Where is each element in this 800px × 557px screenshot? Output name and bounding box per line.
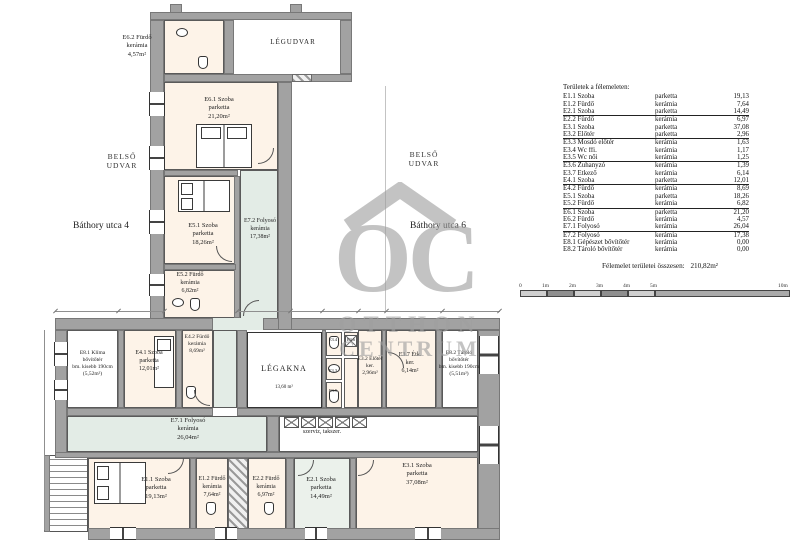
legend-room-name: E3.5 Wc női: [563, 154, 655, 161]
window-icon: [149, 146, 165, 170]
legend-area-value: 12,01: [705, 177, 749, 184]
legend-area-value: 19,13: [705, 93, 749, 100]
legend-area-value: 6,97: [705, 116, 749, 123]
scale-segment: [574, 290, 601, 297]
window-icon: [149, 210, 165, 234]
room-label-e82: E8.2 Tároló bővítőtér bm. kisebb 190cm (…: [436, 350, 482, 379]
pillow-icon: [181, 183, 193, 195]
room-label-e36: E3.6: [343, 338, 359, 343]
legend-row: E7.1 Folyosó kerámia 26,04: [563, 223, 749, 231]
floorplan-document: E6.2 Fürdő kerámia 4,57m² LÉGUDVAR E6.1 …: [0, 0, 800, 557]
room-label-e61: E6.1 Szoba parketta 21,20m²: [189, 96, 249, 121]
service-box-icon: [284, 417, 299, 428]
room-label-e52: E5.2 Fürdő kerámia 6,82m²: [163, 272, 217, 295]
legend-row: E5.1 Szoba parketta 18,26: [563, 193, 749, 200]
legend-room-name: E7.1 Folyosó: [563, 223, 655, 230]
legend-material: kerámia: [655, 232, 705, 239]
wall-cut-hatch: [292, 74, 312, 82]
legend-material: parketta: [655, 177, 705, 184]
legend-row: E4.1 Szoba parketta 12,01: [563, 177, 749, 185]
legend-row: E7.2 Folyosó kerámia 17,38: [563, 232, 749, 239]
wall: [278, 82, 292, 330]
legend-material: kerámia: [655, 246, 705, 253]
legend-area-value: 18,26: [705, 193, 749, 200]
legend-area-value: 1,63: [705, 139, 749, 146]
legend-area-value: 1,17: [705, 147, 749, 154]
legend: Területek a félemeleten: E1.1 Szoba park…: [563, 84, 749, 254]
service-box-icon: [335, 417, 350, 428]
legend-total: Félemelet területei összesen: 210,82m²: [560, 262, 760, 270]
room-label-e12: E1.2 Fürdő kerámia 7,64m²: [194, 476, 230, 499]
legend-room-name: E1.2 Fürdő: [563, 101, 655, 108]
room-label-e32: E3.2 Előtér ker. 2,96m²: [356, 356, 384, 377]
dimension-tick: [497, 309, 502, 314]
wall: [150, 12, 352, 20]
legend-row: E3.2 Előtér parketta 2,96: [563, 131, 749, 139]
corridor-connector: [213, 318, 263, 330]
legend-room-name: E8.1 Gépészet bővítőtér: [563, 239, 655, 246]
toilet-icon: [206, 502, 216, 515]
pillow-icon: [227, 127, 247, 139]
sink-icon: [172, 298, 184, 307]
service-box-icon: [318, 417, 333, 428]
scale-segment: [547, 290, 574, 297]
room-label-e11: E1.1 Szoba parketta 19,13m²: [126, 476, 186, 501]
scale-label: 5m: [650, 283, 657, 289]
street-label-bathory6: Báthory utca 6: [388, 221, 488, 231]
legend-room-name: E3.1 Szoba: [563, 124, 655, 131]
legend-material: parketta: [655, 108, 705, 115]
room-label-e42: E4.2 Fürdő kerámia 8,69m²: [177, 334, 217, 355]
legend-material: parketta: [655, 193, 705, 200]
legend-room-name: E3.4 Wc ffi.: [563, 147, 655, 154]
wall: [237, 408, 478, 416]
legend-area-value: 8,69: [705, 185, 749, 192]
legend-material: kerámia: [655, 223, 705, 230]
scale-bar: 0 1m 2m 3m 4m 5m 10m: [520, 283, 790, 299]
scale-label: 2m: [569, 283, 576, 289]
wall: [291, 318, 500, 330]
corridor-label-e71: E7.1 Folyosó kerámia 26,04m²: [158, 417, 218, 442]
street-label-bathory4: Báthory utca 4: [56, 221, 146, 231]
legend-area-value: 2,96: [705, 131, 749, 138]
window-icon: [54, 380, 68, 400]
legend-row: E3.1 Szoba parketta 37,08: [563, 124, 749, 131]
legend-room-name: E3.7 Étkező: [563, 170, 655, 177]
room-label-e35: E3.5: [325, 389, 341, 394]
legend-room-name: E4.1 Szoba: [563, 177, 655, 184]
legend-room-name: E4.2 Fürdő: [563, 185, 655, 192]
legend-area-value: 1,25: [705, 154, 749, 161]
window-icon: [305, 527, 327, 540]
balcony-door-icon: [479, 426, 499, 464]
pillow-icon: [97, 486, 109, 500]
legend-row: E8.1 Gépészet bővítőtér kerámia 0,00: [563, 239, 749, 246]
legend-total-value: 210,82m²: [690, 262, 718, 270]
balcony-door-icon: [479, 336, 499, 374]
legend-row: E6.2 Fürdő kerámia 4,57: [563, 216, 749, 223]
bed-icon: [196, 124, 252, 168]
legend-material: parketta: [655, 124, 705, 131]
legend-row: E6.1 Szoba parketta 21,20: [563, 209, 749, 216]
legend-area-value: 0,00: [705, 239, 749, 246]
scale-segment: [628, 290, 655, 297]
legend-material: kerámia: [655, 216, 705, 223]
legend-material: kerámia: [655, 185, 705, 192]
shaft-hatch: [228, 458, 248, 530]
legend-area-value: 6,14: [705, 170, 749, 177]
legend-area-value: 37,08: [705, 124, 749, 131]
legend-material: parketta: [655, 131, 705, 138]
window-icon: [110, 527, 136, 540]
legakna-area: 13,60 m²: [275, 385, 293, 390]
wall: [224, 20, 234, 74]
dimension-line: [237, 311, 500, 312]
legend-material: kerámia: [655, 139, 705, 146]
legend-material: kerámia: [655, 154, 705, 161]
room-label-e31: E3.1 Szoba parketta 37,08m²: [387, 462, 447, 487]
room-label-e22: E2.2 Fürdő kerámia 6,97m²: [246, 476, 286, 499]
room-label-e33: E3.3: [325, 369, 341, 374]
room-e62-bath: [164, 20, 224, 74]
room-label-e34: E3.4: [325, 338, 341, 343]
window-icon: [149, 92, 165, 116]
toilet-icon: [198, 56, 208, 69]
legend-row: E2.1 Szoba parketta 14,49: [563, 108, 749, 116]
legend-area-value: 7,64: [705, 101, 749, 108]
shaft-label-legakna: LÉGAKNA 13,60 m²: [254, 356, 314, 392]
legend-area-value: 17,38: [705, 232, 749, 239]
legend-room-name: E3.2 Előtér: [563, 131, 655, 138]
legend-room-name: E5.2 Fürdő: [563, 200, 655, 207]
legend-total-label: Félemelet területei összesen:: [602, 262, 685, 270]
wall: [55, 452, 478, 458]
sink-icon: [176, 28, 188, 37]
room-label-e62: E6.2 Fürdő kerámia 4,57m²: [107, 34, 167, 59]
wall: [67, 408, 213, 416]
legend-area-value: 26,04: [705, 223, 749, 230]
legend-material: kerámia: [655, 239, 705, 246]
legend-area-value: 0,00: [705, 246, 749, 253]
legend-header: Területek a félemeleten:: [563, 84, 749, 91]
wall: [237, 330, 247, 408]
legend-area-value: 6,82: [705, 200, 749, 207]
wall: [234, 176, 240, 318]
scale-label: 3m: [596, 283, 603, 289]
legend-room-name: E1.1 Szoba: [563, 93, 655, 100]
legend-area-value: 1,39: [705, 162, 749, 169]
scale-label: 1m: [542, 283, 549, 289]
legend-room-name: E6.1 Szoba: [563, 209, 655, 216]
courtyard-label-right: BELSŐ UDVAR: [399, 150, 449, 168]
legend-material: kerámia: [655, 162, 705, 169]
toilet-icon: [264, 502, 274, 515]
courtyard-label-left: BELSŐ UDVAR: [97, 152, 147, 170]
scale-label: 10m: [778, 283, 788, 289]
legend-row: E2.2 Fürdő kerámia 6,97: [563, 116, 749, 123]
room-label-e37: E3.7 Étk. ker. 6,14m²: [390, 352, 430, 375]
window-icon: [415, 527, 441, 540]
legend-area-value: 4,57: [705, 216, 749, 223]
scale-segment: [601, 290, 628, 297]
wall: [164, 264, 236, 270]
service-box-icon: [301, 417, 316, 428]
scale-segment: [520, 290, 547, 297]
legend-area-value: 21,20: [705, 209, 749, 216]
wall: [55, 318, 213, 330]
legend-row: E8.2 Tároló bővítőtér kerámia 0,00: [563, 246, 749, 253]
legend-room-name: E2.2 Fürdő: [563, 116, 655, 123]
toilet-icon: [190, 298, 200, 311]
wall: [164, 170, 238, 176]
property-line: [385, 86, 386, 311]
window-icon: [215, 527, 237, 540]
wall: [350, 458, 356, 530]
wall: [340, 20, 352, 74]
legend-row: E3.7 Étkező kerámia 6,14: [563, 170, 749, 177]
legend-room-name: E6.2 Fürdő: [563, 216, 655, 223]
dimension-line: [55, 311, 165, 312]
legend-room-name: E2.1 Szoba: [563, 108, 655, 115]
staircase: [48, 455, 88, 532]
legend-room-name: E5.1 Szoba: [563, 193, 655, 200]
room-label-e51: E5.1 Szoba parketta 18,26m²: [173, 222, 233, 247]
service-box-icon: [352, 417, 367, 428]
legend-area-value: 14,49: [705, 108, 749, 115]
scale-segment: [655, 290, 790, 297]
legend-row: E3.4 Wc ffi. kerámia 1,17: [563, 147, 749, 154]
room-label-e21: E2.1 Szoba parketta 14,49m²: [293, 476, 349, 501]
legend-material: kerámia: [655, 116, 705, 123]
dimension-line: [44, 330, 45, 530]
legend-room-name: E3.6 Zuhanyzó: [563, 162, 655, 169]
wall: [164, 74, 352, 82]
courtyard-label-legudvar: LÉGUDVAR: [258, 38, 328, 47]
legend-room-name: E3.3 Mosdó előtér: [563, 139, 655, 146]
bed-icon: [178, 180, 230, 212]
scale-label: 4m: [623, 283, 630, 289]
legend-row: E1.1 Szoba parketta 19,13: [563, 93, 749, 100]
wall: [267, 416, 279, 452]
pillow-icon: [181, 198, 193, 210]
legend-row: E4.2 Fürdő kerámia 8,69: [563, 185, 749, 192]
room-label-e41: E4.1 Szoba parketta 12,01m²: [126, 350, 172, 373]
legend-table: E1.1 Szoba parketta 19,13 E1.2 Fürdő ker…: [563, 93, 749, 253]
pillow-icon: [97, 466, 109, 480]
legend-row: E1.2 Fürdő kerámia 7,64: [563, 101, 749, 108]
legend-material: kerámia: [655, 101, 705, 108]
legend-row: E5.2 Fürdő kerámia 6,82: [563, 200, 749, 208]
room-label-e72: E7.2 Folyosó kerámia 17,38m²: [238, 218, 282, 241]
room-label-e81: E8.1 Klíma bővítőtér bm. kisebb 190cm (5…: [66, 350, 119, 379]
service-label: szerviz, takszer.: [287, 429, 357, 437]
legend-row: E3.6 Zuhanyzó kerámia 1,39: [563, 162, 749, 169]
legend-room-name: E7.2 Folyosó: [563, 232, 655, 239]
legend-material: parketta: [655, 209, 705, 216]
legend-row: E3.3 Mosdó előtér kerámia 1,63: [563, 139, 749, 146]
pillow-icon: [201, 127, 221, 139]
legakna-title: LÉGAKNA: [261, 364, 307, 373]
legend-material: parketta: [655, 93, 705, 100]
legend-material: kerámia: [655, 200, 705, 207]
legend-room-name: E8.2 Tároló bővítőtér: [563, 246, 655, 253]
legend-material: kerámia: [655, 147, 705, 154]
scale-label: 0: [519, 283, 522, 289]
legend-row: E3.5 Wc női kerámia 1,25: [563, 154, 749, 162]
legend-material: kerámia: [655, 170, 705, 177]
